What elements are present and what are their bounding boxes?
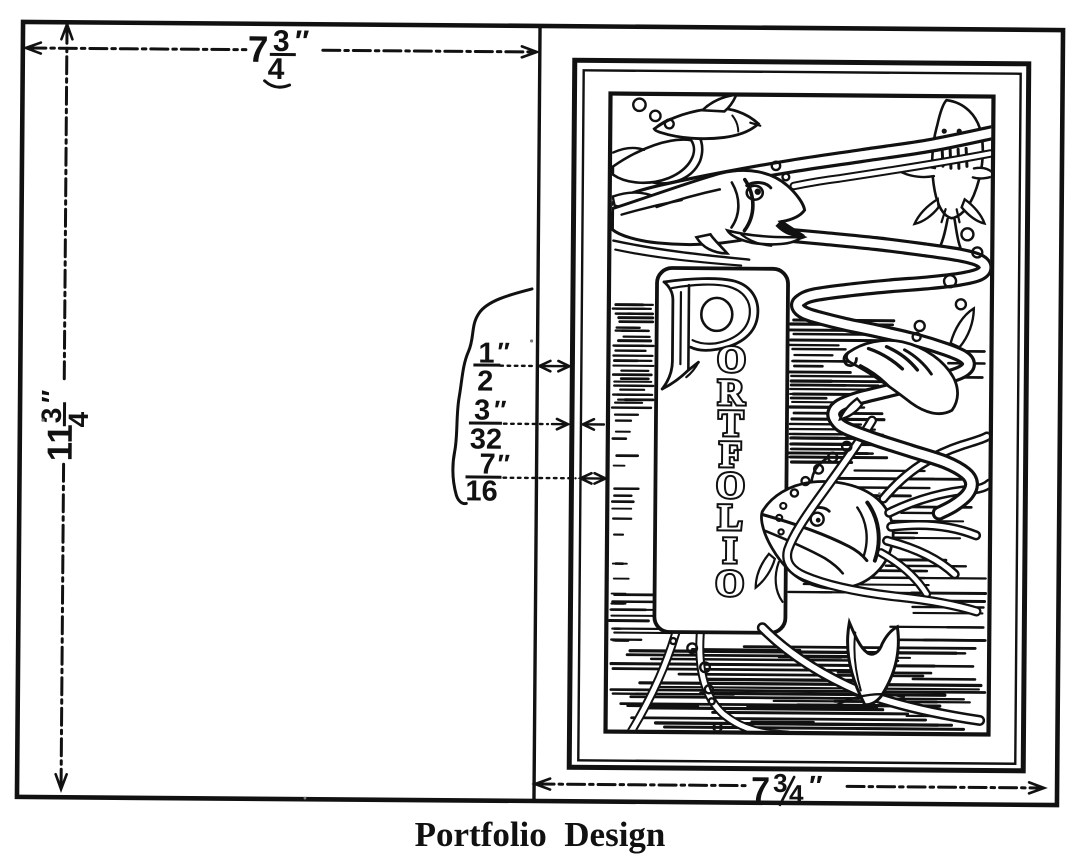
svg-text:O: O [715, 563, 744, 604]
svg-text:11: 11 [41, 424, 80, 461]
svg-text:″: ″ [295, 25, 310, 58]
svg-text:4: 4 [63, 411, 94, 427]
svg-text:″: ″ [497, 337, 510, 367]
svg-text:4: 4 [268, 53, 285, 86]
svg-text:2: 2 [477, 366, 493, 398]
svg-text:7: 7 [751, 771, 770, 809]
svg-text:16: 16 [465, 475, 498, 507]
svg-text:″: ″ [809, 770, 823, 801]
svg-text:7: 7 [248, 29, 269, 70]
svg-text:″: ″ [497, 449, 510, 479]
svg-text:″: ″ [494, 395, 507, 425]
svg-text:″: ″ [36, 390, 67, 404]
svg-text:Portfolio Design: Portfolio Design [415, 815, 666, 854]
